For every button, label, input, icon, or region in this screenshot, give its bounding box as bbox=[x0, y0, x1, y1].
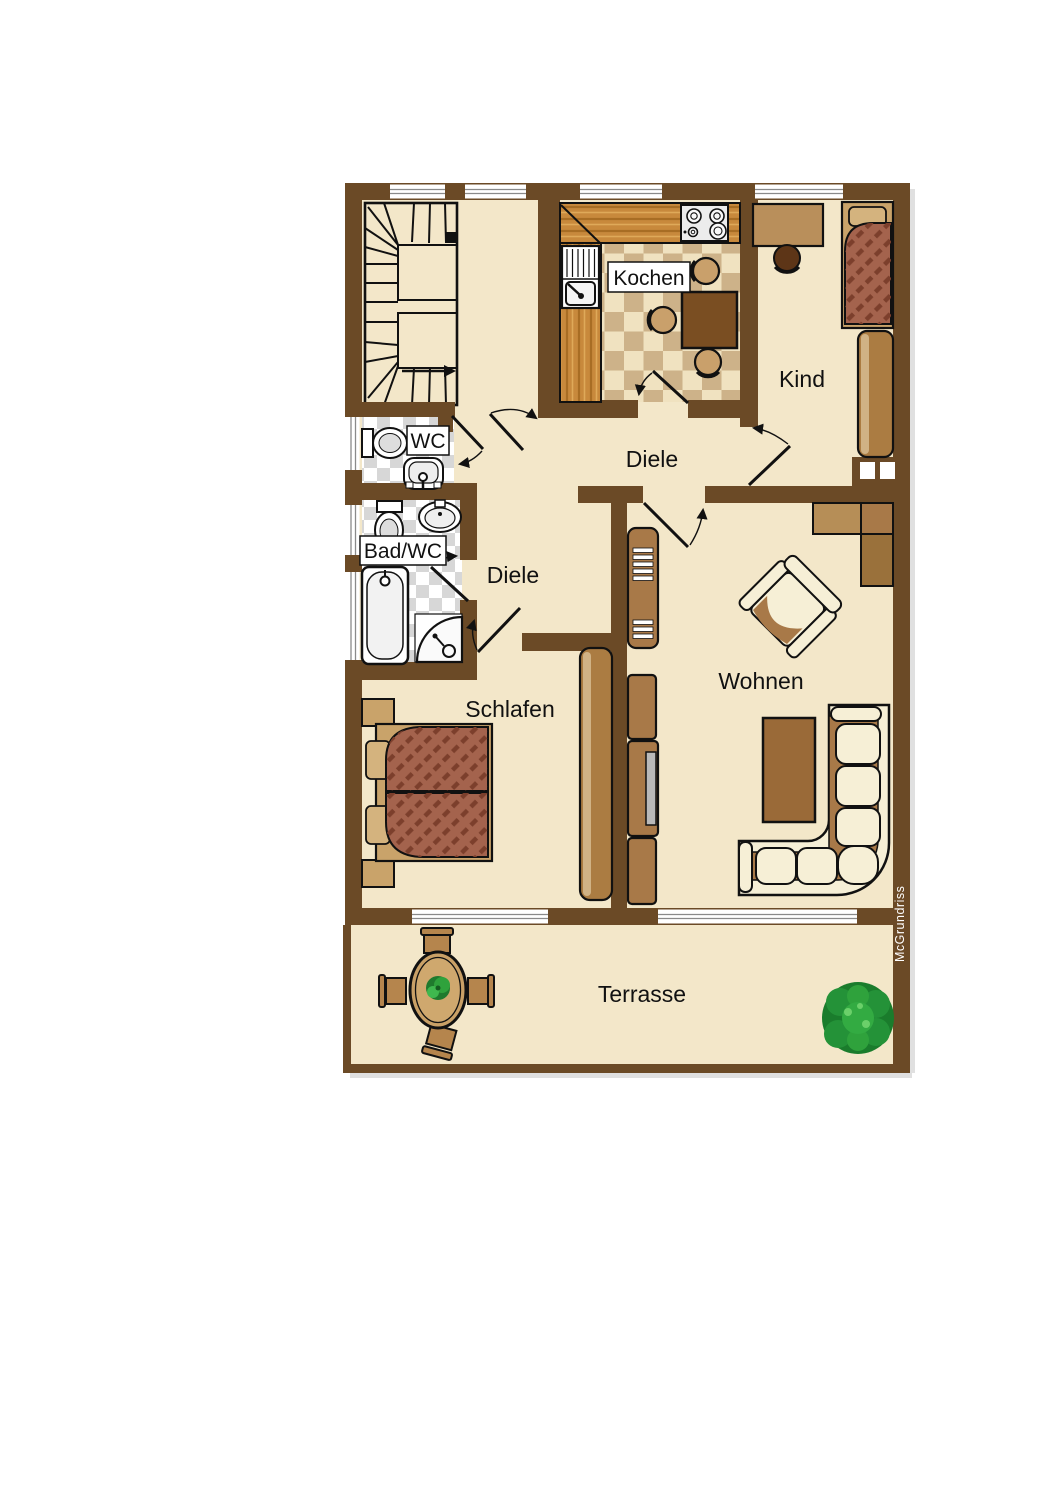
wall-kitchen-west bbox=[538, 183, 560, 418]
window-top-1 bbox=[390, 185, 445, 199]
window-top-2 bbox=[465, 185, 526, 199]
window-bottom-living bbox=[658, 910, 857, 924]
toilet bbox=[362, 428, 407, 458]
wall-terrace-bottom bbox=[343, 1064, 910, 1073]
kitchen-sink bbox=[562, 246, 599, 308]
child-room-label: Kind bbox=[779, 366, 825, 392]
bathtub bbox=[362, 567, 408, 664]
wall-left-lower bbox=[345, 660, 362, 925]
bath-label: Bad/WC bbox=[364, 540, 442, 563]
wall-bath-south bbox=[345, 662, 477, 680]
floorplan-drawing: Kochen WC Bad/WC Kind Diele Diele Schlaf… bbox=[0, 0, 1060, 1500]
wall-bedroom-living-divider bbox=[611, 503, 627, 908]
wall-mid-left bbox=[578, 486, 643, 503]
cabinet bbox=[628, 675, 656, 739]
tv-lowboard bbox=[628, 741, 658, 836]
terrace-chair-top bbox=[421, 928, 453, 953]
nightstand bbox=[362, 860, 394, 887]
window-bottom-bedroom bbox=[412, 910, 548, 924]
hall-lower-label: Diele bbox=[487, 562, 539, 588]
window-top-kitchen bbox=[580, 185, 662, 199]
shelf-unit bbox=[628, 528, 658, 648]
bedroom-wardrobe bbox=[580, 648, 612, 900]
label-bad-wc: Bad/WC bbox=[360, 536, 446, 565]
desk bbox=[753, 204, 823, 246]
wall-terrace-left bbox=[343, 925, 351, 1065]
coffee-table bbox=[763, 718, 815, 822]
nightstand bbox=[362, 699, 394, 726]
shaft-square bbox=[860, 462, 875, 479]
terrace-label: Terrasse bbox=[598, 981, 686, 1007]
wall-left-upper bbox=[345, 183, 362, 417]
wc-label: WC bbox=[411, 430, 446, 453]
tv-screen bbox=[646, 752, 656, 825]
window-top-child bbox=[755, 185, 843, 199]
terrace-table bbox=[410, 952, 466, 1028]
label-wc: WC bbox=[407, 426, 449, 455]
window-left-bath-2 bbox=[347, 572, 360, 660]
terrace-chair-left bbox=[379, 975, 406, 1007]
label-kochen: Kochen bbox=[608, 262, 690, 292]
child-wardrobe bbox=[858, 331, 893, 457]
terrace-chair-right bbox=[468, 975, 494, 1007]
child-bed bbox=[842, 202, 893, 328]
desk-chair bbox=[774, 245, 800, 271]
living-room-label: Wohnen bbox=[718, 668, 803, 694]
bedroom-label: Schlafen bbox=[465, 696, 555, 722]
kitchen-label: Kochen bbox=[613, 267, 684, 290]
hand-basin bbox=[404, 458, 443, 489]
table-plant bbox=[426, 976, 450, 1000]
terrace-tree bbox=[822, 982, 894, 1054]
corner-shower bbox=[415, 614, 462, 662]
window-left-wc bbox=[347, 417, 360, 470]
stove bbox=[681, 205, 728, 241]
wall-bath-east-upper bbox=[460, 483, 477, 560]
window-left-bath-1 bbox=[347, 505, 360, 555]
floorplan-page: Kochen WC Bad/WC Kind Diele Diele Schlaf… bbox=[0, 0, 1060, 1500]
stair-newel-mark bbox=[446, 232, 456, 243]
wall-mid-right bbox=[705, 486, 910, 503]
cabinet bbox=[628, 838, 656, 904]
kitchen-table bbox=[682, 292, 737, 348]
watermark-text: McGrundriss bbox=[893, 886, 907, 962]
shaft-square bbox=[880, 462, 895, 479]
hall-upper-label: Diele bbox=[626, 446, 678, 472]
